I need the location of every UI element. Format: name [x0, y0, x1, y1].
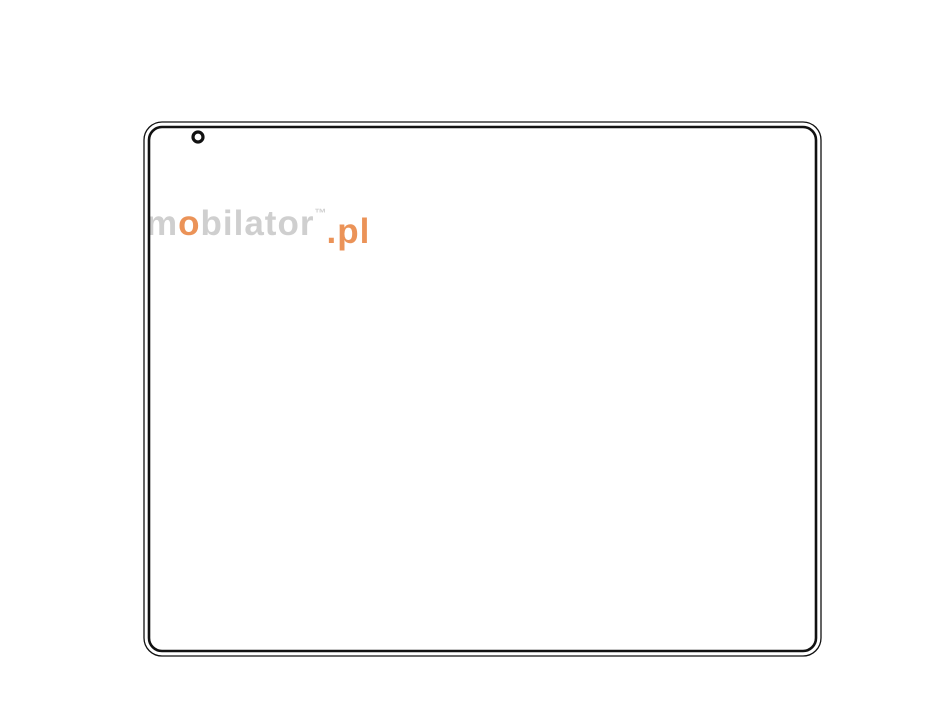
- technical-drawing-canvas: mobilator™.pl: [0, 0, 951, 728]
- panel-pc-rear-drawing: [0, 0, 951, 728]
- cover-screws: [193, 132, 203, 142]
- device-outline: [144, 122, 821, 656]
